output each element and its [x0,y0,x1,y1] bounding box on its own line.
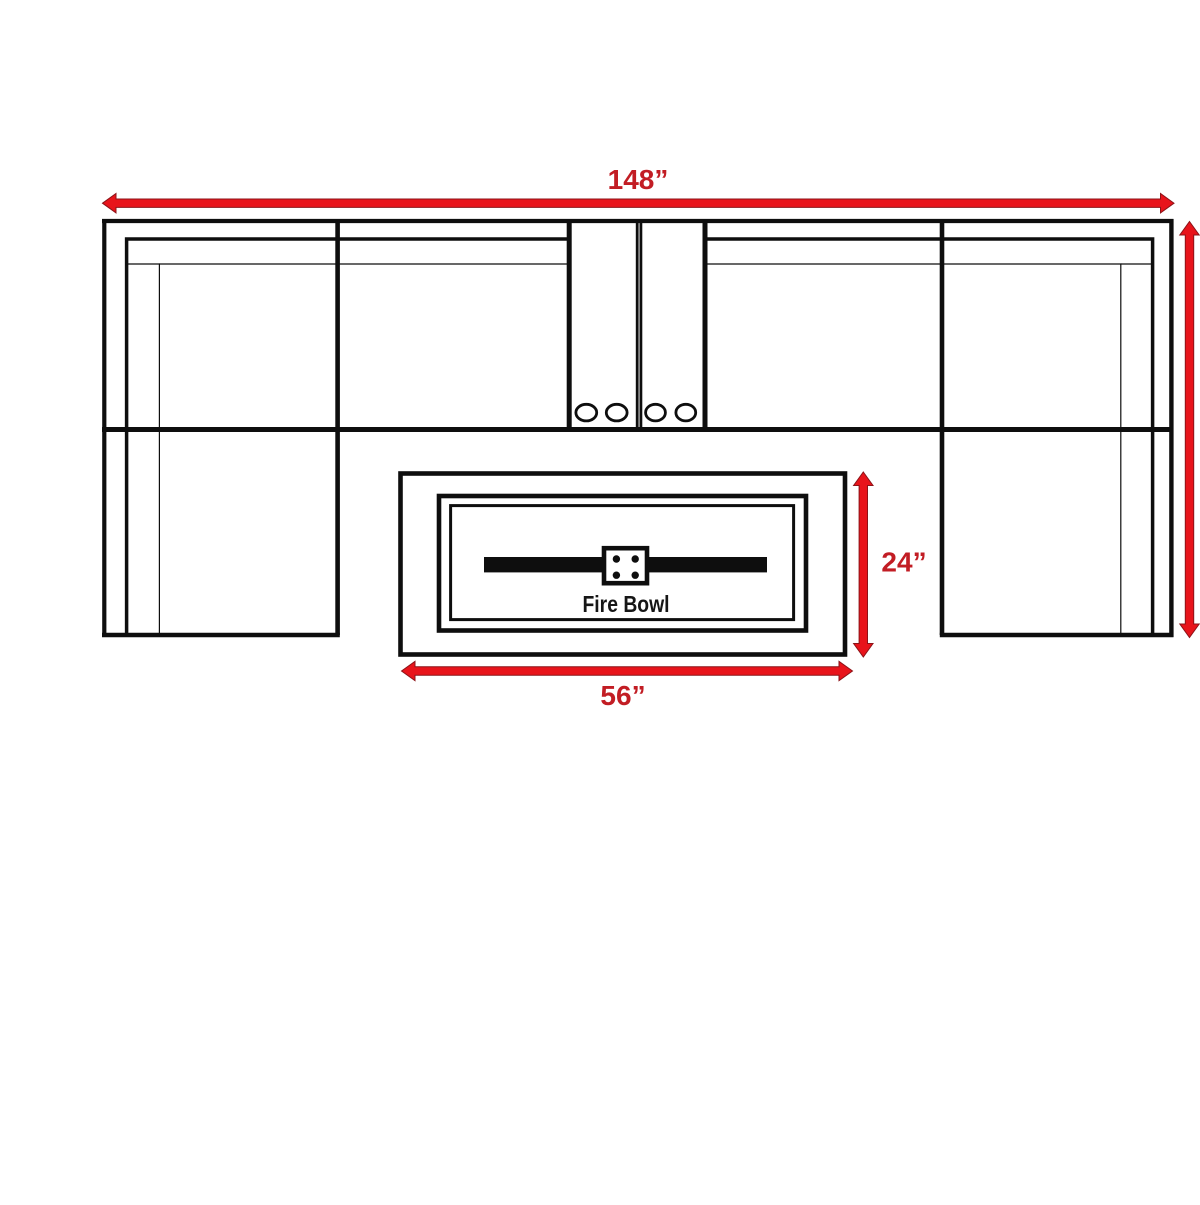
svg-text:148”: 148” [608,164,669,195]
svg-text:24”: 24” [881,547,926,578]
svg-text:56”: 56” [600,680,645,711]
svg-text:Fire Bowl: Fire Bowl [583,591,670,617]
